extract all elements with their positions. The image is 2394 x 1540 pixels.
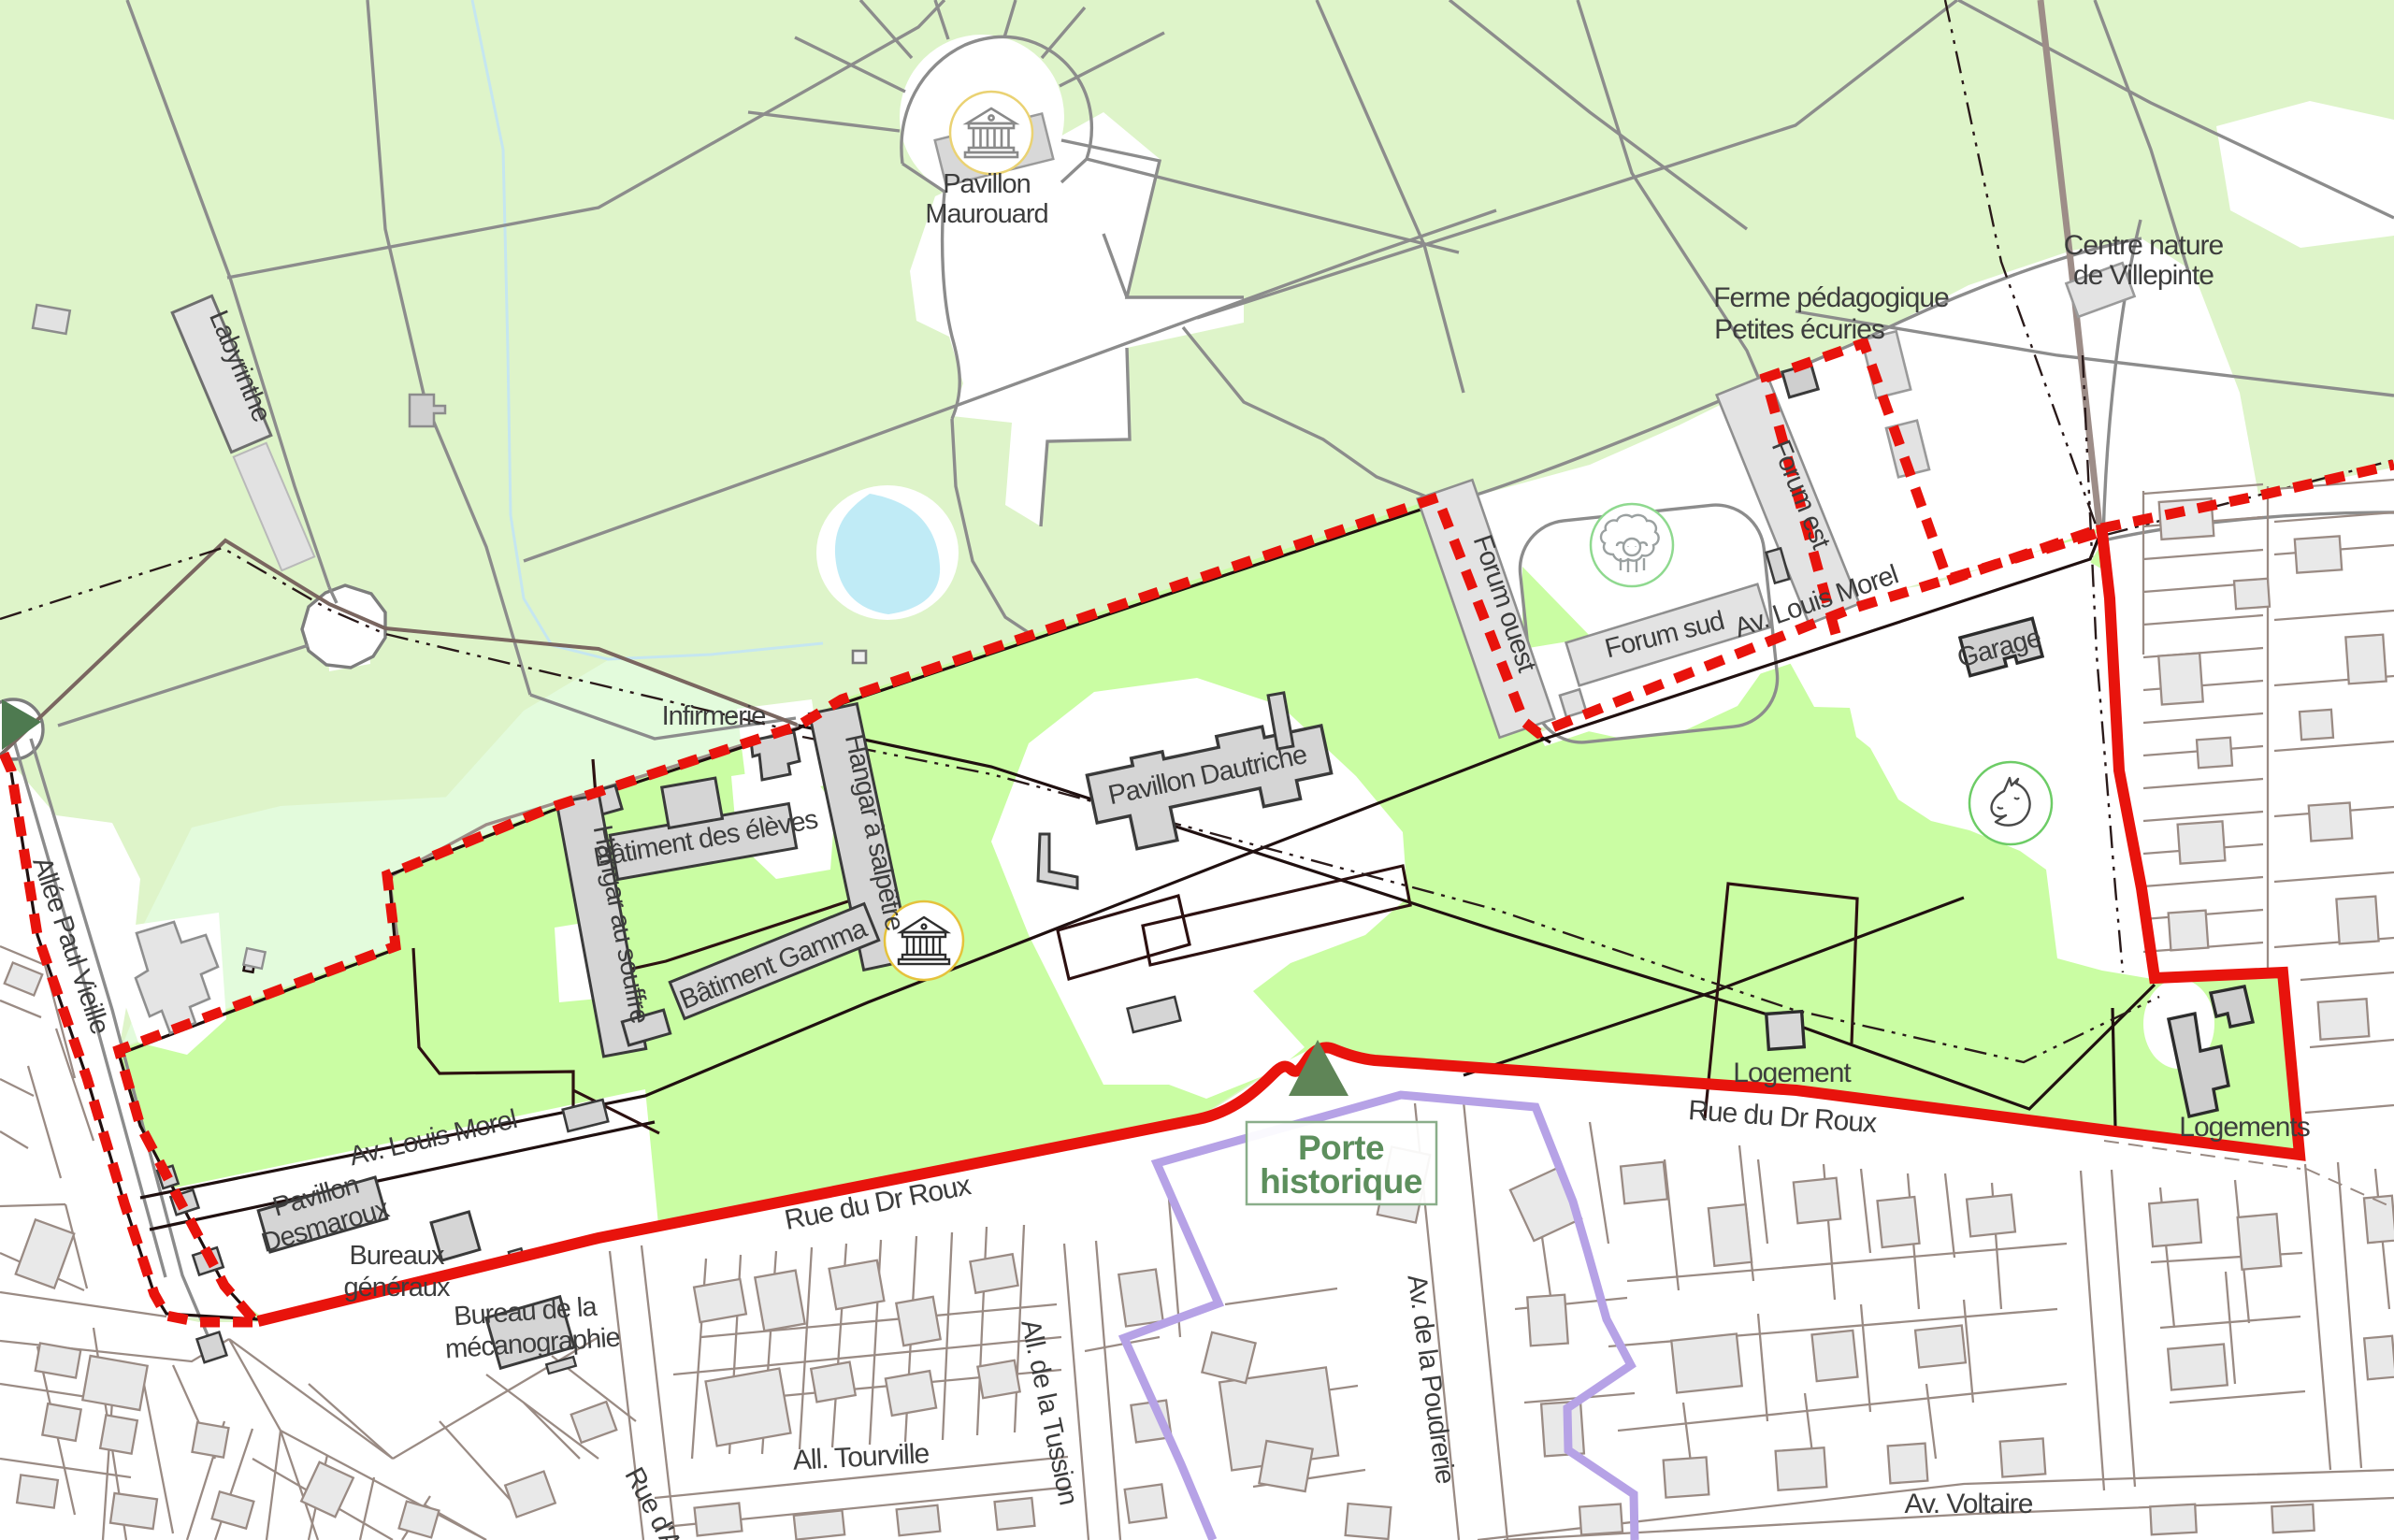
svg-text:Av. Voltaire: Av. Voltaire: [1905, 1489, 2033, 1519]
svg-text:Porte: Porte: [1298, 1129, 1384, 1167]
svg-text:historique: historique: [1260, 1162, 1422, 1201]
svg-text:Logements: Logements: [2179, 1112, 2309, 1143]
svg-text:de Villepinte: de Villepinte: [2073, 260, 2214, 291]
svg-text:Centre nature: Centre nature: [2064, 230, 2224, 261]
svg-text:Petites écuries: Petites écuries: [1714, 314, 1884, 345]
svg-text:Bureaux: Bureaux: [349, 1241, 445, 1271]
svg-text:généraux: généraux: [344, 1273, 451, 1303]
svg-text:Maurouard: Maurouard: [925, 199, 1047, 229]
svg-text:Logement: Logement: [1733, 1058, 1852, 1088]
svg-text:Infirmerie: Infirmerie: [662, 701, 766, 731]
svg-text:Pavillon: Pavillon: [943, 169, 1031, 199]
svg-text:Ferme pédagogique: Ferme pédagogique: [1713, 282, 1949, 313]
